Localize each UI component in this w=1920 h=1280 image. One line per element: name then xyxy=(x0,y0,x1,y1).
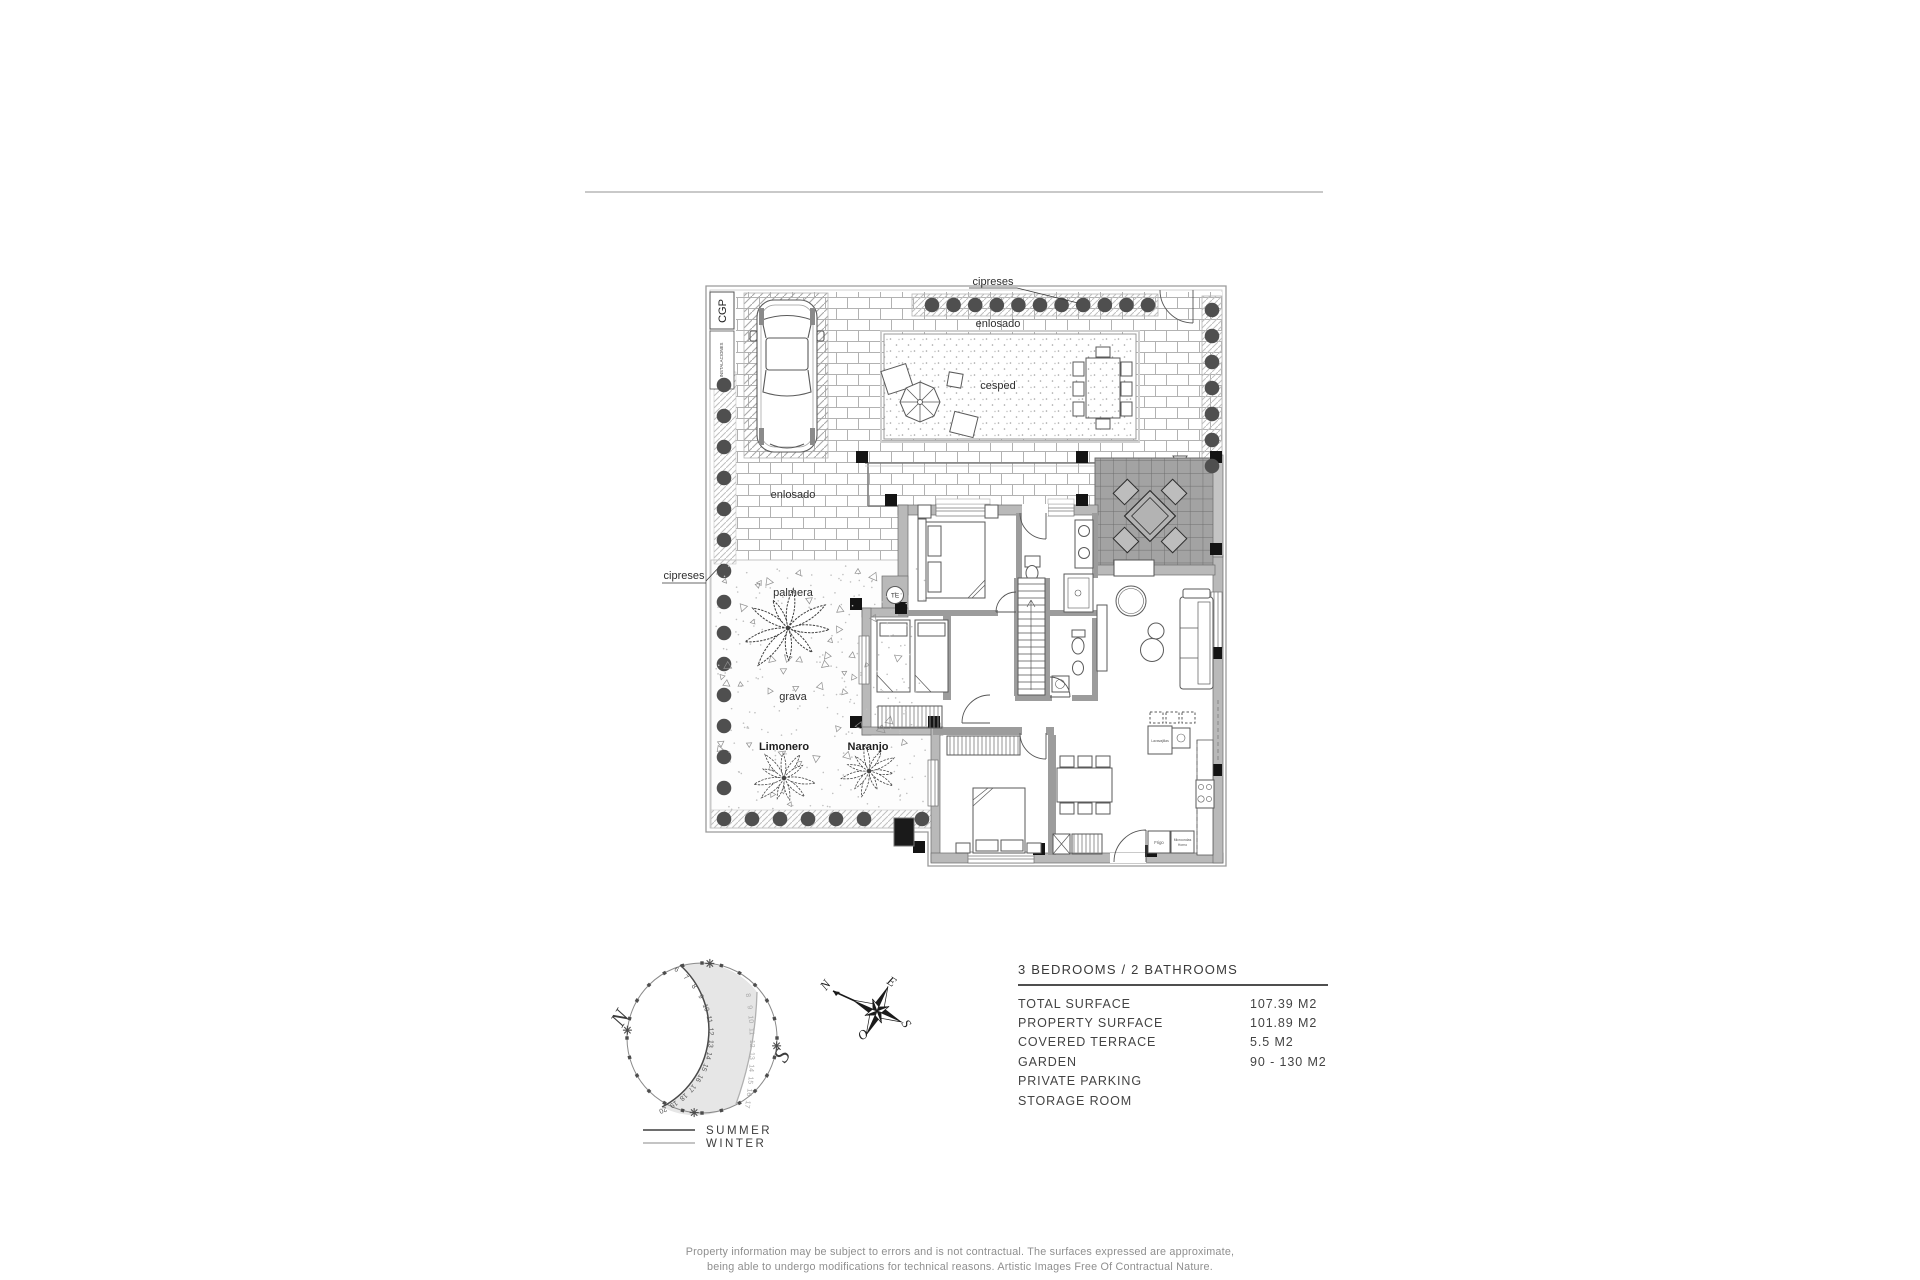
summer-legend-label: SUMMER xyxy=(706,1125,772,1137)
label-cesped: cesped xyxy=(980,380,1015,392)
cypress-tree-icon xyxy=(1011,298,1026,313)
door-mat xyxy=(1072,834,1102,854)
structural-column xyxy=(885,494,897,506)
cypress-tree-icon xyxy=(717,626,732,641)
label-palmera: palmera xyxy=(773,587,814,599)
label-horno: Horno xyxy=(1178,843,1187,847)
cypress-tree-icon xyxy=(717,378,732,393)
cypress-tree-icon xyxy=(1205,303,1220,318)
label-instalaciones: INSTALACIONES xyxy=(719,343,724,378)
parasol-icon xyxy=(900,382,940,422)
cypress-tree-icon xyxy=(801,812,816,827)
spec-row: PROPERTY SURFACE101.89 M2 xyxy=(1018,1013,1328,1032)
cypress-tree-icon xyxy=(717,595,732,610)
spec-label: STORAGE ROOM xyxy=(1018,1094,1250,1108)
disclaimer-line-1: Property information may be subject to e… xyxy=(660,1245,1260,1260)
compass-north-label: N xyxy=(816,976,835,994)
stairs xyxy=(1018,578,1045,695)
label-dishwasher: Lavavajillas xyxy=(1151,739,1169,743)
label-cipreses-top: cipreses xyxy=(973,276,1014,288)
cypress-tree-icon xyxy=(1119,298,1134,313)
sun-hour-label: 7 xyxy=(682,974,690,982)
cypress-tree-icon xyxy=(1076,298,1091,313)
cypress-tree-icon xyxy=(857,812,872,827)
specs-rows: TOTAL SURFACE107.39 M2PROPERTY SURFACE10… xyxy=(1018,994,1328,1110)
cypress-tree-icon xyxy=(1205,433,1220,448)
spec-row: COVERED TERRACE5.5 M2 xyxy=(1018,1033,1328,1052)
specs-panel: 3 BEDROOMS / 2 BATHROOMS TOTAL SURFACE10… xyxy=(1018,962,1328,1110)
compass-east-label: E xyxy=(884,972,900,989)
winter-legend-label: WINTER xyxy=(706,1138,766,1150)
spec-row: GARDEN90 - 130 M2 xyxy=(1018,1052,1328,1071)
structural-column xyxy=(1076,494,1088,506)
spec-value: 90 - 130 M2 xyxy=(1250,1055,1328,1069)
label-enlosado-top: enlosado xyxy=(976,318,1021,330)
cypress-tree-icon xyxy=(829,812,844,827)
spec-value: 5.5 M2 xyxy=(1250,1035,1328,1049)
sun-hour-label: 10 xyxy=(747,1015,755,1023)
sun-hour-label: 17 xyxy=(743,1100,751,1109)
cypress-tree-icon xyxy=(717,781,732,796)
cypress-tree-icon xyxy=(990,298,1005,313)
cypress-tree-icon xyxy=(1205,381,1220,396)
cypress-tree-icon xyxy=(1098,298,1113,313)
storage-box xyxy=(894,818,914,846)
sun-path-diagram: 6789101112131415161718192089101112131415… xyxy=(605,959,796,1150)
sun-legend: SUMMER WINTER xyxy=(643,1125,772,1150)
spec-label: PROPERTY SURFACE xyxy=(1018,1016,1250,1030)
sun-hour-label: 12 xyxy=(707,1028,714,1036)
dining-table xyxy=(1057,756,1112,814)
label-enlosado-mid: enlosado xyxy=(771,489,816,501)
cypress-tree-icon xyxy=(1205,407,1220,422)
specs-title: 3 BEDROOMS / 2 BATHROOMS xyxy=(1018,962,1328,986)
spec-label: PRIVATE PARKING xyxy=(1018,1074,1250,1088)
cypress-tree-icon xyxy=(717,533,732,548)
label-limonero: Limonero xyxy=(759,741,809,753)
compass-rose: N E S O xyxy=(816,972,915,1043)
car xyxy=(750,300,824,452)
sun-hour-label: 16 xyxy=(745,1088,753,1097)
cypress-tree-icon xyxy=(773,812,788,827)
cypress-tree-icon xyxy=(717,688,732,703)
sun-hour-label: 15 xyxy=(746,1076,754,1084)
spec-label: COVERED TERRACE xyxy=(1018,1035,1250,1049)
structural-column xyxy=(913,841,925,853)
sun-hour-label: 12 xyxy=(748,1040,755,1048)
sun-hour-label: 13 xyxy=(706,1039,714,1048)
cypress-tree-icon xyxy=(745,812,760,827)
label-microondas: Microondas xyxy=(1174,838,1192,842)
microwave-oven xyxy=(1171,831,1194,853)
spec-label: TOTAL SURFACE xyxy=(1018,997,1250,1011)
spec-row: TOTAL SURFACE107.39 M2 xyxy=(1018,994,1328,1013)
spec-row: STORAGE ROOM xyxy=(1018,1091,1328,1110)
floorplan-page: cipreses enlosado cesped enlosado cipres… xyxy=(0,0,1920,1280)
cypress-tree-icon xyxy=(717,471,732,486)
floor-plan-drawing: cipreses enlosado cesped enlosado cipres… xyxy=(0,0,1920,1280)
spec-row: PRIVATE PARKING xyxy=(1018,1072,1328,1091)
structural-column xyxy=(1076,451,1088,463)
sun-hour-label: 13 xyxy=(748,1052,755,1060)
cypress-tree-icon xyxy=(717,812,732,827)
spec-value: 101.89 M2 xyxy=(1250,1016,1328,1030)
cypress-tree-icon xyxy=(946,298,961,313)
sun-hour-label: 11 xyxy=(705,1015,713,1024)
label-cgp: CGP xyxy=(717,299,729,323)
sun-hour-label: 6 xyxy=(673,966,680,974)
structural-column xyxy=(856,451,868,463)
cypress-tree-icon xyxy=(1141,298,1156,313)
sun-hour-label: 11 xyxy=(747,1028,754,1036)
cypress-tree-icon xyxy=(717,440,732,455)
compass-south-label: S xyxy=(898,1017,914,1031)
structural-column xyxy=(1210,543,1222,555)
sun-hour-label: 20 xyxy=(658,1105,668,1115)
sun-hour-label: 8 xyxy=(690,983,698,990)
cypress-tree-icon xyxy=(1205,329,1220,344)
cypress-tree-icon xyxy=(915,812,930,827)
cypress-tree-icon xyxy=(717,719,732,734)
covered-terrace xyxy=(1091,457,1216,576)
spec-value: 107.39 M2 xyxy=(1250,997,1328,1011)
sun-hour-label: 14 xyxy=(747,1064,754,1072)
structural-column xyxy=(850,598,862,610)
cypress-tree-icon xyxy=(717,502,732,517)
label-fridge: Frigo xyxy=(1154,840,1164,845)
cypress-tree-icon xyxy=(1033,298,1048,313)
cypress-tree-icon xyxy=(1205,459,1220,474)
terrace-step xyxy=(1114,560,1154,576)
label-naranjo: Naranjo xyxy=(848,741,889,753)
disclaimer: Property information may be subject to e… xyxy=(660,1245,1260,1274)
cypress-tree-icon xyxy=(717,409,732,424)
cypress-tree-icon xyxy=(925,298,940,313)
cooktop xyxy=(1196,780,1214,808)
label-te: TE xyxy=(891,593,900,600)
label-grava: grava xyxy=(779,691,807,703)
disclaimer-line-2: being able to undergo modifications for … xyxy=(660,1260,1260,1275)
cypress-tree-icon xyxy=(1205,355,1220,370)
cypress-tree-icon xyxy=(968,298,983,313)
label-cipreses-left: cipreses xyxy=(664,570,705,582)
spec-label: GARDEN xyxy=(1018,1055,1250,1069)
